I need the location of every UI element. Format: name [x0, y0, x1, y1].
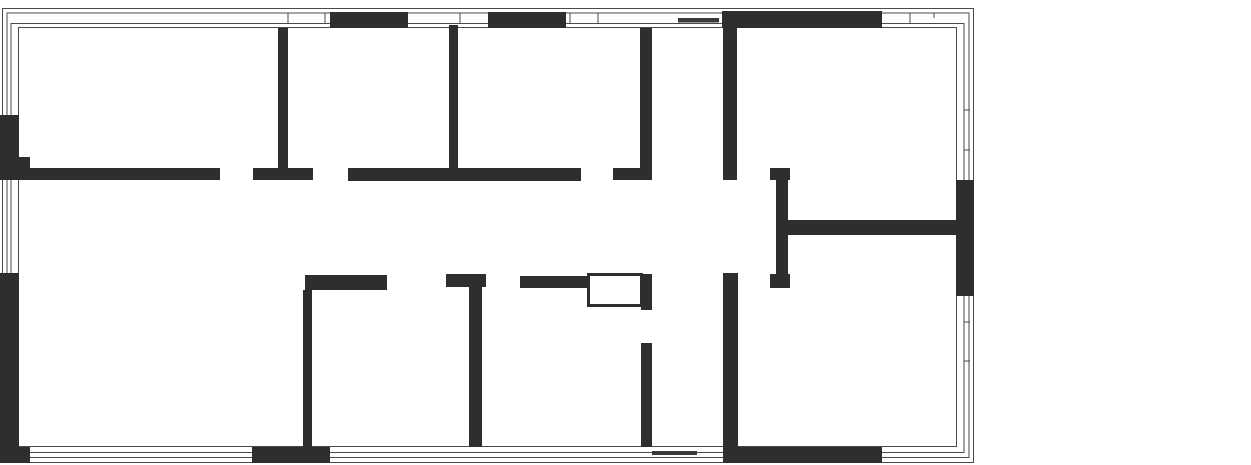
wall-segment-t-wall-foot: [770, 274, 790, 288]
wall-segment-right-room-divider: [788, 220, 958, 235]
wall-segment-top-exterior: [330, 12, 408, 28]
wall-segment-top-exterior: [488, 12, 566, 28]
shaft-outline: [589, 275, 642, 306]
wall-segment-corridor-top: [348, 168, 581, 181]
wall-segment-left-exterior: [0, 273, 19, 463]
wall-segment-top-exterior: [722, 11, 882, 28]
wall-segment-room-divider: [469, 287, 482, 447]
wall-segment-right-exterior: [956, 180, 974, 296]
wall-segment-room-divider: [641, 343, 652, 447]
wall-segment-corridor-bottom: [305, 275, 387, 290]
wall-segment-room-divider: [303, 290, 312, 447]
wall-segment-t-wall-stem: [776, 180, 788, 276]
plan-background: [0, 0, 1251, 465]
wall-segment-corridor-top: [253, 168, 313, 180]
wall-segment-corridor-bottom: [520, 276, 587, 288]
wall-segment-corridor-bottom: [446, 274, 486, 287]
floorplan-canvas: [0, 0, 1251, 465]
wall-segment-room-divider: [640, 28, 652, 168]
wall-segment-room-divider: [449, 25, 458, 168]
floor-plan: [0, 0, 1251, 465]
wall-segment-room-divider: [278, 28, 288, 168]
wall-segment-corridor-top: [0, 168, 220, 180]
wall-segment-t-wall-cap: [770, 168, 790, 180]
wall-segment-shaft-side: [641, 274, 652, 310]
wall-segment-bottom-exterior: [252, 447, 330, 463]
wall-segment-bottom-left-corner: [0, 447, 30, 463]
wall-segment-room-divider: [723, 28, 737, 180]
wall-segment-corridor-top: [613, 168, 652, 180]
wall-segment-bottom-exterior: [723, 447, 882, 463]
door-leaf: [652, 451, 697, 455]
wall-segment-room-divider: [723, 273, 738, 463]
door-leaf: [678, 18, 719, 23]
